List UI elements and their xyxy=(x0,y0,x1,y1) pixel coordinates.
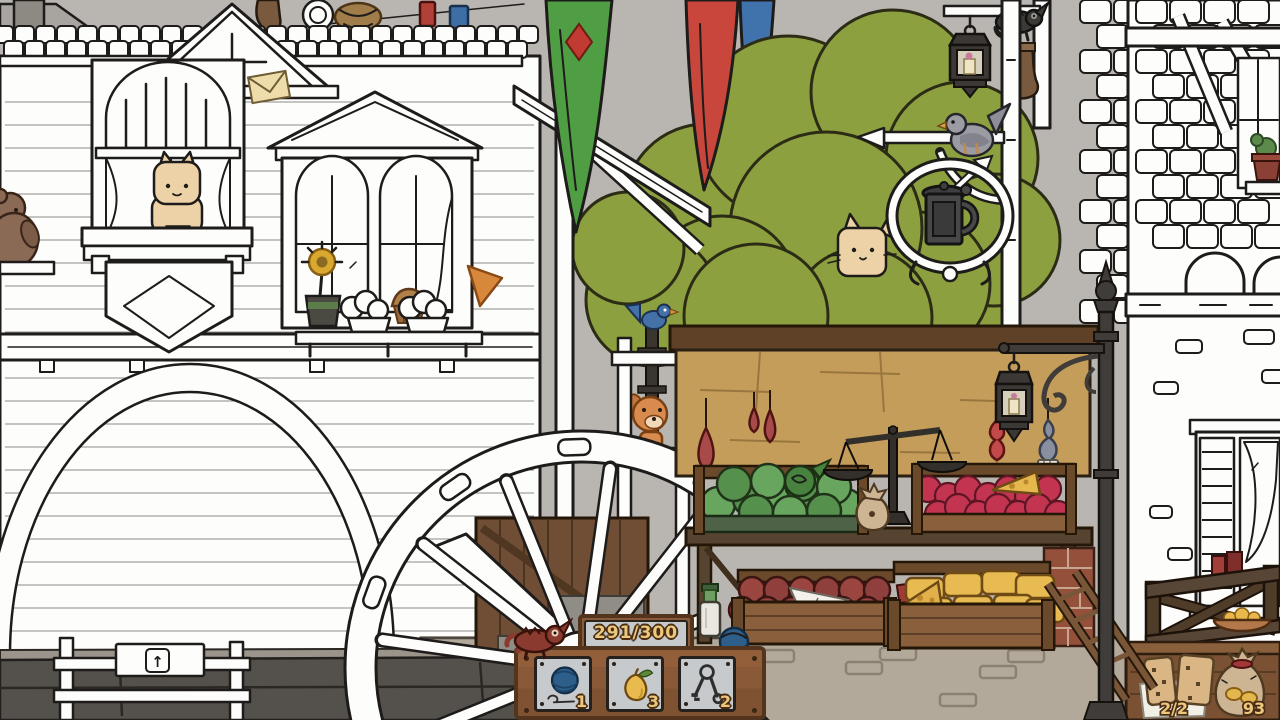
right-building: 2/2 93 xyxy=(1126,0,1280,720)
slot-pear[interactable]: 3 xyxy=(606,656,664,712)
village-scene: 2/2 93 xyxy=(0,0,1280,720)
cookie-count-label: 2/2 xyxy=(1160,699,1188,718)
slot-count: 1 xyxy=(576,692,587,711)
window-sill xyxy=(82,228,252,246)
small-money-bag[interactable] xyxy=(857,484,889,530)
balcony-cat[interactable] xyxy=(152,152,202,234)
envelope[interactable] xyxy=(248,71,290,103)
game-stage: 2/2 93 xyxy=(0,0,1280,720)
slot-count: 2 xyxy=(720,692,731,711)
hanging-lantern[interactable] xyxy=(950,26,990,97)
apple-crate xyxy=(729,570,896,646)
berry-crate xyxy=(912,464,1076,534)
cactus-window xyxy=(1238,58,1280,194)
slot-keys[interactable]: 2 xyxy=(678,656,736,712)
exit-up-sign[interactable]: ↑ xyxy=(116,644,204,676)
up-arrow-icon: ↑ xyxy=(151,653,164,671)
slot-yarn-ball[interactable]: 1 xyxy=(534,656,592,712)
cheese-crate xyxy=(888,562,1064,650)
coin-count-label: 93 xyxy=(1243,699,1265,718)
green-bottle[interactable] xyxy=(700,584,720,636)
progress-label: 291/300 xyxy=(594,623,678,643)
red-can[interactable] xyxy=(420,2,435,26)
blue-box[interactable] xyxy=(450,6,468,28)
red-chameleon[interactable] xyxy=(497,615,573,661)
slot-count: 3 xyxy=(648,692,659,711)
progress-plate: 291/300 xyxy=(584,620,688,647)
